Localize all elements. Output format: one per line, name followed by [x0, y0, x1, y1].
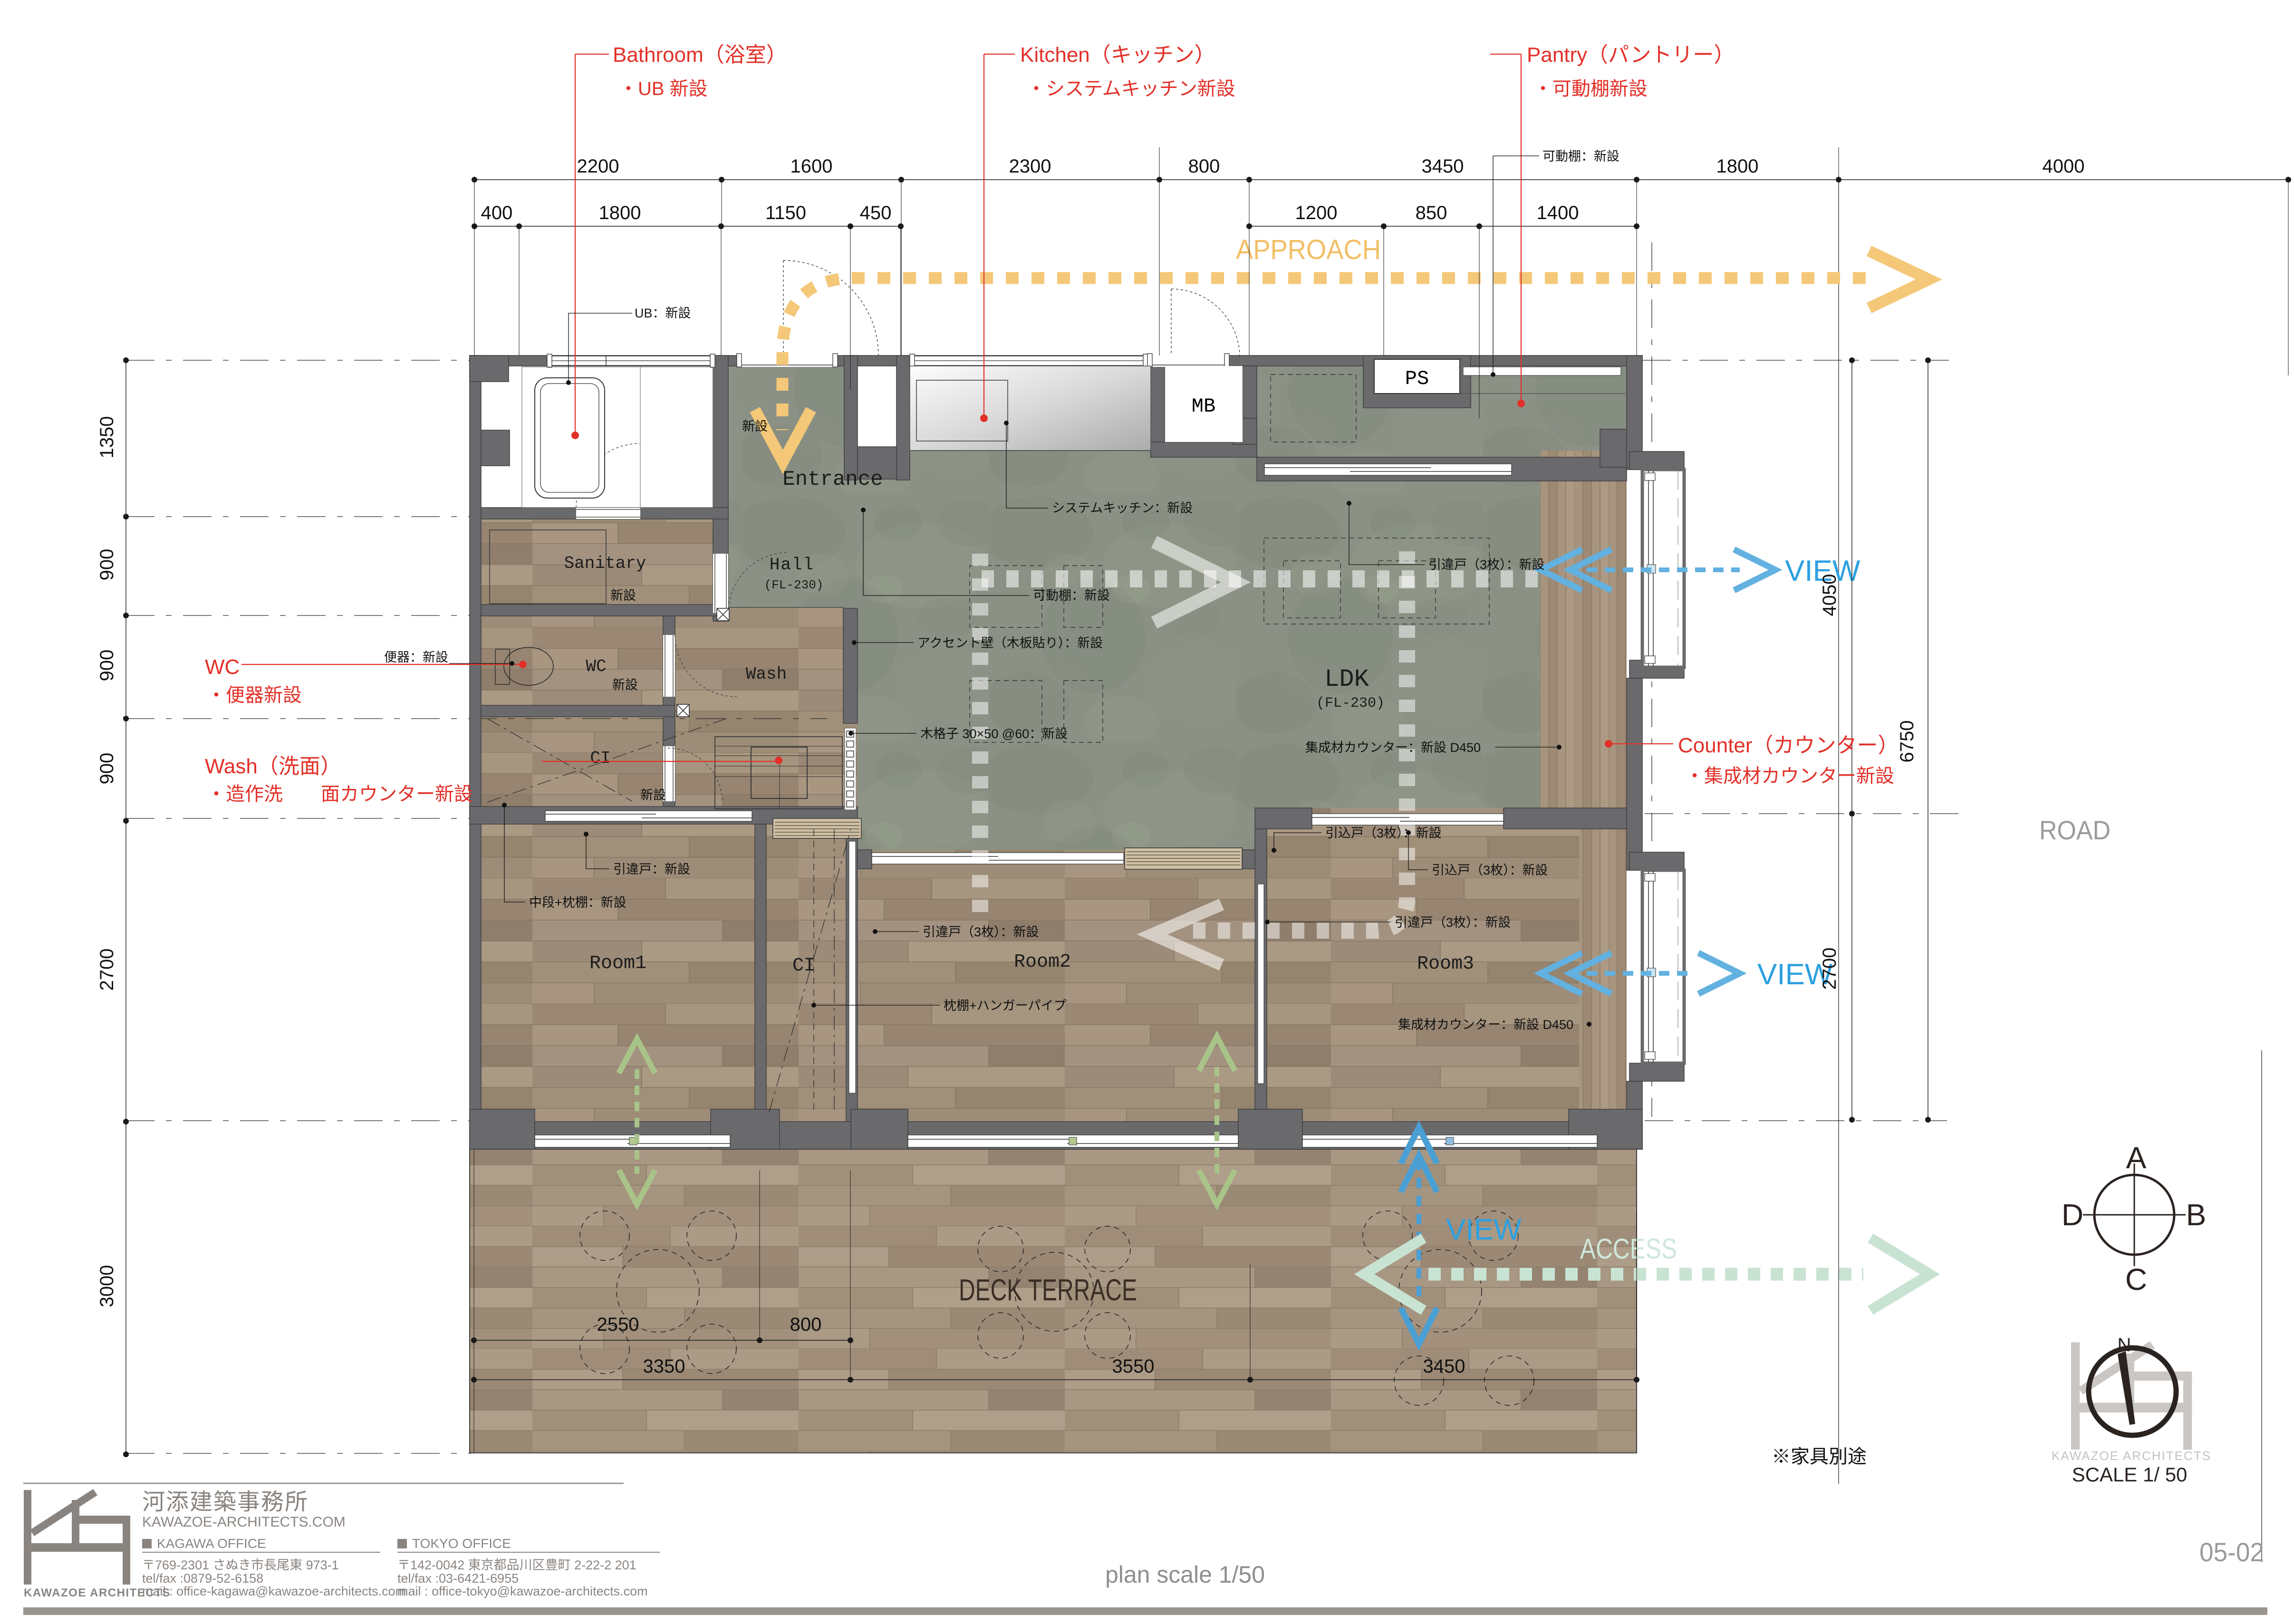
svg-text:A: A	[2126, 1141, 2147, 1175]
svg-text:〒142-0042 東京都品川区豊町 2-22-2 201: 〒142-0042 東京都品川区豊町 2-22-2 201	[397, 1558, 636, 1572]
svg-text:木格子 30×50 @60：新設: 木格子 30×50 @60：新設	[920, 727, 1068, 741]
svg-text:900: 900	[96, 650, 117, 682]
svg-text:800: 800	[1188, 156, 1220, 177]
svg-text:引込戸（3枚）：新設: 引込戸（3枚）：新設	[1325, 826, 1442, 840]
svg-text:引違戸（3枚）：新設: 引違戸（3枚）：新設	[923, 925, 1039, 939]
svg-text:Room3: Room3	[1417, 953, 1474, 975]
svg-text:SCALE 1/ 50: SCALE 1/ 50	[2072, 1463, 2188, 1486]
svg-text:450: 450	[860, 202, 892, 223]
svg-text:MB: MB	[1192, 395, 1215, 418]
svg-text:中段+枕棚：新設: 中段+枕棚：新設	[529, 895, 627, 910]
svg-text:Sanitary: Sanitary	[564, 554, 646, 573]
svg-text:APPROACH: APPROACH	[1236, 234, 1381, 265]
svg-text:ROAD: ROAD	[2039, 815, 2111, 845]
svg-text:1800: 1800	[599, 202, 641, 223]
svg-text:引違戸（3枚）：新設: 引違戸（3枚）：新設	[1395, 915, 1511, 930]
svg-text:KAGAWA OFFICE: KAGAWA OFFICE	[157, 1536, 266, 1551]
svg-text:3450: 3450	[1423, 1356, 1465, 1377]
svg-text:2700: 2700	[1819, 948, 1840, 990]
svg-text:3350: 3350	[643, 1356, 685, 1377]
svg-text:・造作洗 面カウンター新設: ・造作洗 面カウンター新設	[207, 784, 473, 805]
svg-text:※家具別途: ※家具別途	[1772, 1446, 1867, 1467]
svg-text:Kitchen（キッチン）: Kitchen（キッチン）	[1020, 43, 1215, 67]
svg-text:WC: WC	[205, 655, 240, 679]
svg-text:アクセント壁（木板貼り）：新設: アクセント壁（木板貼り）：新設	[917, 636, 1103, 650]
svg-text:tel/fax :03-6421-6955: tel/fax :03-6421-6955	[397, 1571, 519, 1586]
svg-text:PS: PS	[1405, 367, 1429, 390]
svg-text:UB：新設: UB：新設	[635, 306, 691, 320]
svg-text:可動棚：新設: 可動棚：新設	[1033, 588, 1110, 603]
svg-text:引違戸：新設: 引違戸：新設	[613, 862, 690, 876]
svg-text:新設: 新設	[640, 788, 666, 802]
svg-text:・集成材カウンター新設: ・集成材カウンター新設	[1685, 766, 1894, 787]
svg-text:Entrance: Entrance	[782, 468, 883, 491]
svg-text:N: N	[2118, 1335, 2131, 1355]
svg-text:DECK TERRACE: DECK TERRACE	[959, 1273, 1137, 1307]
svg-text:河添建築事務所: 河添建築事務所	[142, 1489, 308, 1515]
svg-text:新設: 新設	[742, 419, 768, 433]
svg-text:可動棚：新設: 可動棚：新設	[1542, 149, 1619, 163]
svg-text:システムキッチン：新設: システムキッチン：新設	[1052, 501, 1193, 515]
svg-text:便器：新設: 便器：新設	[384, 650, 448, 664]
svg-text:Bathroom（浴室）: Bathroom（浴室）	[613, 43, 787, 67]
svg-text:(FL-230): (FL-230)	[1316, 695, 1385, 711]
svg-text:Room2: Room2	[1014, 951, 1071, 973]
svg-text:1800: 1800	[1716, 156, 1759, 177]
svg-text:C: C	[2125, 1262, 2147, 1297]
svg-text:Counter（カウンター）: Counter（カウンター）	[1678, 734, 1899, 757]
svg-text:Pantry（パントリー）: Pantry（パントリー）	[1527, 43, 1735, 67]
svg-text:4000: 4000	[2043, 156, 2085, 177]
svg-text:3450: 3450	[1422, 156, 1464, 177]
svg-text:1400: 1400	[1537, 202, 1579, 223]
svg-text:1350: 1350	[96, 416, 117, 459]
svg-text:Room1: Room1	[589, 953, 646, 974]
svg-text:ACCESS: ACCESS	[1580, 1233, 1677, 1265]
svg-text:〒769-2301 さぬき市長尾東 973-1: 〒769-2301 さぬき市長尾東 973-1	[142, 1558, 339, 1572]
svg-text:1150: 1150	[765, 202, 806, 223]
svg-text:・UB 新設: ・UB 新設	[619, 78, 708, 99]
svg-text:D: D	[2062, 1198, 2083, 1232]
svg-text:plan scale 1/50: plan scale 1/50	[1105, 1561, 1265, 1588]
svg-text:900: 900	[96, 753, 117, 785]
svg-text:・可動棚新設: ・可動棚新設	[1533, 78, 1648, 99]
svg-text:・システムキッチン新設: ・システムキッチン新設	[1027, 78, 1235, 99]
svg-text:CI: CI	[792, 955, 815, 977]
svg-text:Wash（洗面）: Wash（洗面）	[205, 755, 341, 778]
svg-text:TOKYO OFFICE: TOKYO OFFICE	[412, 1536, 511, 1551]
svg-text:6750: 6750	[1897, 721, 1918, 763]
svg-text:KAWAZOE ARCHITECTS: KAWAZOE ARCHITECTS	[2052, 1449, 2211, 1463]
svg-text:集成材カウンター：新設 D450: 集成材カウンター：新設 D450	[1398, 1018, 1573, 1032]
svg-text:CI: CI	[590, 749, 610, 768]
svg-text:新設: 新設	[610, 588, 636, 603]
svg-text:1200: 1200	[1295, 202, 1338, 223]
svg-text:4050: 4050	[1819, 574, 1840, 616]
svg-text:850: 850	[1416, 202, 1447, 223]
svg-text:mail : office-kagawa@kawazoe-a: mail : office-kagawa@kawazoe-architects.…	[142, 1584, 406, 1598]
svg-text:1600: 1600	[790, 156, 833, 177]
svg-text:引違戸（3枚）：新設: 引違戸（3枚）：新設	[1428, 557, 1545, 572]
svg-text:3000: 3000	[96, 1265, 117, 1307]
svg-text:WC: WC	[586, 657, 606, 676]
svg-text:VIEW: VIEW	[1446, 1213, 1522, 1246]
svg-text:tel/fax :0879-52-6158: tel/fax :0879-52-6158	[142, 1571, 263, 1586]
svg-text:2700: 2700	[96, 949, 117, 991]
svg-text:LDK: LDK	[1324, 665, 1369, 693]
svg-text:(FL-230): (FL-230)	[764, 578, 824, 592]
svg-text:新設: 新設	[612, 678, 638, 692]
svg-text:引込戸（3枚）：新設: 引込戸（3枚）：新設	[1432, 863, 1548, 877]
svg-text:2200: 2200	[577, 156, 619, 177]
svg-text:400: 400	[481, 202, 513, 223]
svg-text:枕棚+ハンガーパイプ: 枕棚+ハンガーパイプ	[944, 999, 1067, 1013]
svg-text:3550: 3550	[1112, 1356, 1155, 1377]
svg-text:集成材カウンター：新設 D450: 集成材カウンター：新設 D450	[1305, 740, 1481, 755]
svg-text:800: 800	[790, 1314, 822, 1335]
svg-text:KAWAZOE-ARCHITECTS.COM: KAWAZOE-ARCHITECTS.COM	[142, 1514, 346, 1530]
svg-text:mail : office-tokyo@kawazoe-ar: mail : office-tokyo@kawazoe-architects.c…	[397, 1584, 648, 1598]
svg-text:Hall: Hall	[770, 555, 814, 575]
svg-text:・便器新設: ・便器新設	[207, 685, 302, 706]
svg-text:900: 900	[96, 549, 117, 581]
svg-text:Wash: Wash	[746, 664, 787, 684]
svg-text:B: B	[2186, 1198, 2207, 1232]
svg-text:2300: 2300	[1009, 156, 1051, 177]
svg-text:05-02: 05-02	[2199, 1537, 2264, 1567]
svg-text:2550: 2550	[597, 1314, 639, 1335]
